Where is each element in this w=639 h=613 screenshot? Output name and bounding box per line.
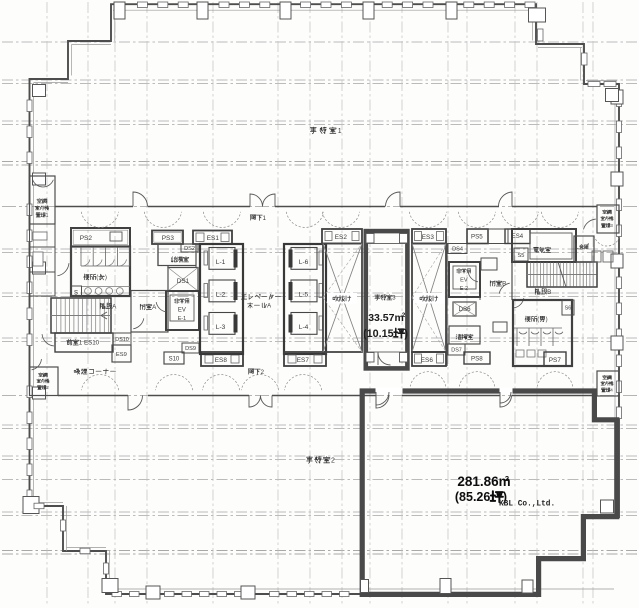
svg-text:ES6: ES6 <box>421 357 434 364</box>
svg-text:L-2: L-2 <box>216 291 226 298</box>
svg-text:(: ( <box>537 317 539 323</box>
svg-text:DS1: DS1 <box>177 278 190 285</box>
svg-text:L-6: L-6 <box>299 259 309 266</box>
svg-text:L-3: L-3 <box>216 324 226 331</box>
svg-text:4: 4 <box>610 388 613 393</box>
svg-text:DS2: DS2 <box>184 246 195 252</box>
svg-text:EV: EV <box>460 278 468 284</box>
svg-text:L-5: L-5 <box>299 291 309 298</box>
svg-text:): ) <box>546 317 548 323</box>
svg-text:S5: S5 <box>518 253 525 259</box>
svg-text:(85.26: (85.26 <box>455 490 490 504</box>
svg-text:DS4: DS4 <box>452 247 463 253</box>
svg-text:ES8: ES8 <box>215 357 228 364</box>
svg-text:PS3: PS3 <box>162 235 175 242</box>
svg-text:PS5: PS5 <box>471 234 483 241</box>
svg-text:PS7: PS7 <box>549 357 562 364</box>
svg-text:E-1: E-1 <box>178 316 186 322</box>
svg-text:2: 2 <box>331 458 335 465</box>
svg-text:DS9: DS9 <box>185 346 196 352</box>
svg-text:ES2: ES2 <box>335 234 348 241</box>
svg-text:B: B <box>547 289 551 296</box>
svg-text:1: 1 <box>338 128 342 135</box>
svg-text:281.86m: 281.86m <box>457 474 510 489</box>
svg-text:3: 3 <box>610 223 613 228</box>
svg-text:S10: S10 <box>169 357 180 363</box>
svg-text:): ) <box>105 274 107 281</box>
svg-text:2: 2 <box>505 474 509 483</box>
svg-text:A: A <box>267 304 271 310</box>
svg-text:EV: EV <box>178 308 186 314</box>
svg-text:(10.15: (10.15 <box>363 328 394 340</box>
svg-text:L-1: L-1 <box>216 259 226 266</box>
svg-text:1 ES10: 1 ES10 <box>79 340 100 347</box>
svg-text:33.57m: 33.57m <box>368 312 404 324</box>
svg-text:2: 2 <box>261 369 265 376</box>
svg-text:ES4: ES4 <box>512 234 524 240</box>
svg-text:ES1: ES1 <box>207 235 220 242</box>
svg-text:PS8: PS8 <box>471 356 483 363</box>
svg-text:DS10: DS10 <box>115 337 129 343</box>
svg-text:ES9: ES9 <box>116 352 127 358</box>
svg-text:): ) <box>404 328 408 340</box>
svg-text:DS6: DS6 <box>459 306 472 313</box>
svg-text:DS7: DS7 <box>451 347 462 353</box>
svg-text:KBL Co.,Ltd.: KBL Co.,Ltd. <box>499 501 555 509</box>
svg-text:L-4: L-4 <box>299 324 309 331</box>
svg-text:PS2: PS2 <box>80 235 93 242</box>
svg-text:2: 2 <box>46 385 49 390</box>
svg-text:S6: S6 <box>565 305 572 311</box>
svg-text:1: 1 <box>263 215 267 222</box>
svg-text:1: 1 <box>46 213 49 219</box>
svg-text:S: S <box>74 291 78 297</box>
svg-text:ES3: ES3 <box>422 234 435 241</box>
svg-text:ES7: ES7 <box>297 357 310 364</box>
svg-text:E-2: E-2 <box>460 286 468 292</box>
